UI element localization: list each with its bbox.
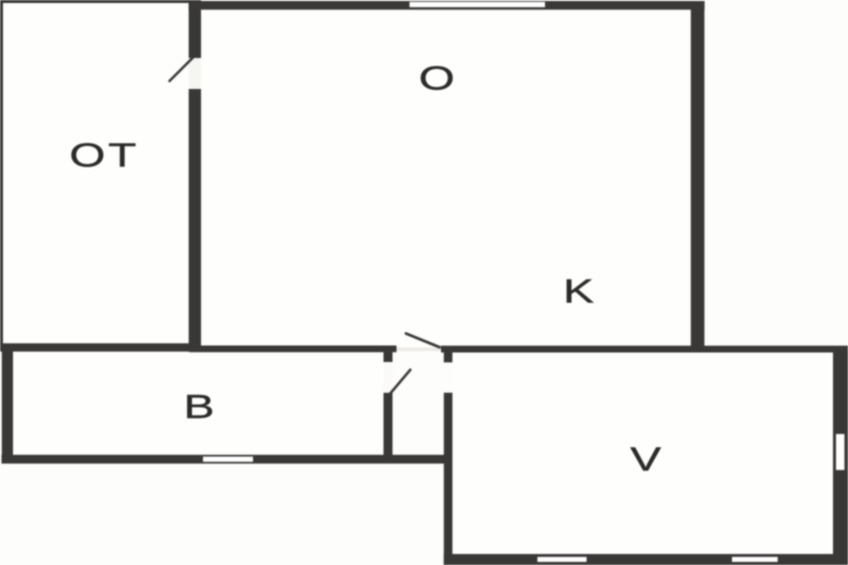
svg-text:K: K xyxy=(563,273,594,310)
svg-text:O: O xyxy=(419,60,455,97)
svg-text:B: B xyxy=(184,388,215,425)
svg-text:V: V xyxy=(630,441,661,478)
svg-text:OT: OT xyxy=(69,137,139,174)
